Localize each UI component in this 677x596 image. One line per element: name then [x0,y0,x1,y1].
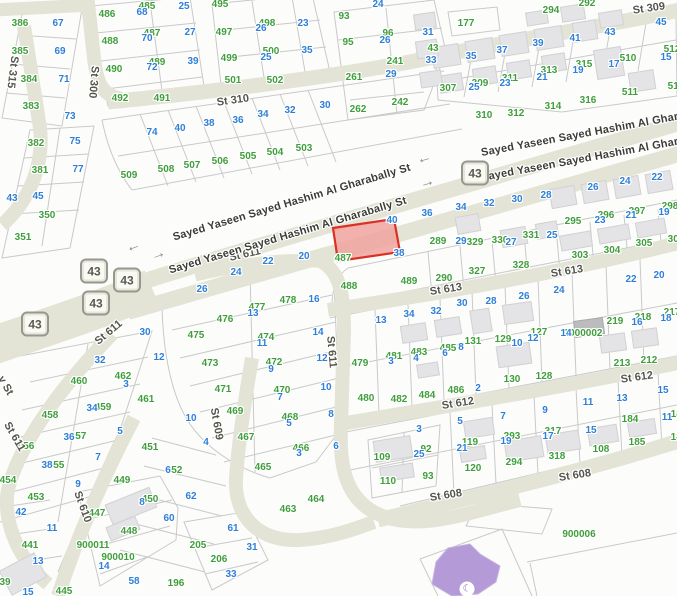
route-43-shield: 43 [21,312,49,337]
route-43-shield: 43 [82,291,110,316]
route-43-shield: 43 [113,268,141,293]
route-43-shield: 43 [80,259,108,284]
route-43-shield: 43 [461,161,489,186]
map-canvas[interactable]: 3863853843833823813503513948648849049248… [0,0,677,596]
mosque-crescent-icon: ☾ [460,582,475,596]
